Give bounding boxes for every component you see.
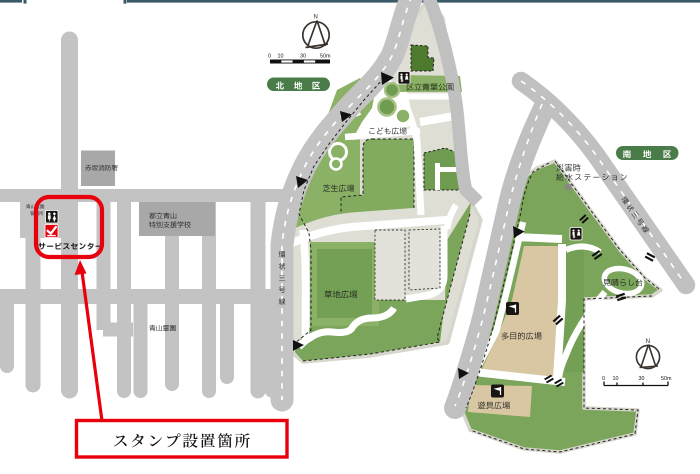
svg-text:N: N bbox=[646, 338, 651, 345]
svg-text:30: 30 bbox=[639, 376, 645, 382]
svg-text:50m: 50m bbox=[320, 54, 331, 60]
svg-text:30: 30 bbox=[300, 54, 306, 60]
svg-text:10: 10 bbox=[613, 376, 619, 382]
svg-text:N: N bbox=[314, 15, 318, 21]
svg-text:0: 0 bbox=[268, 54, 271, 60]
svg-text:50m: 50m bbox=[661, 376, 672, 382]
svg-text:0: 0 bbox=[602, 376, 605, 382]
svg-text:10: 10 bbox=[278, 54, 284, 60]
